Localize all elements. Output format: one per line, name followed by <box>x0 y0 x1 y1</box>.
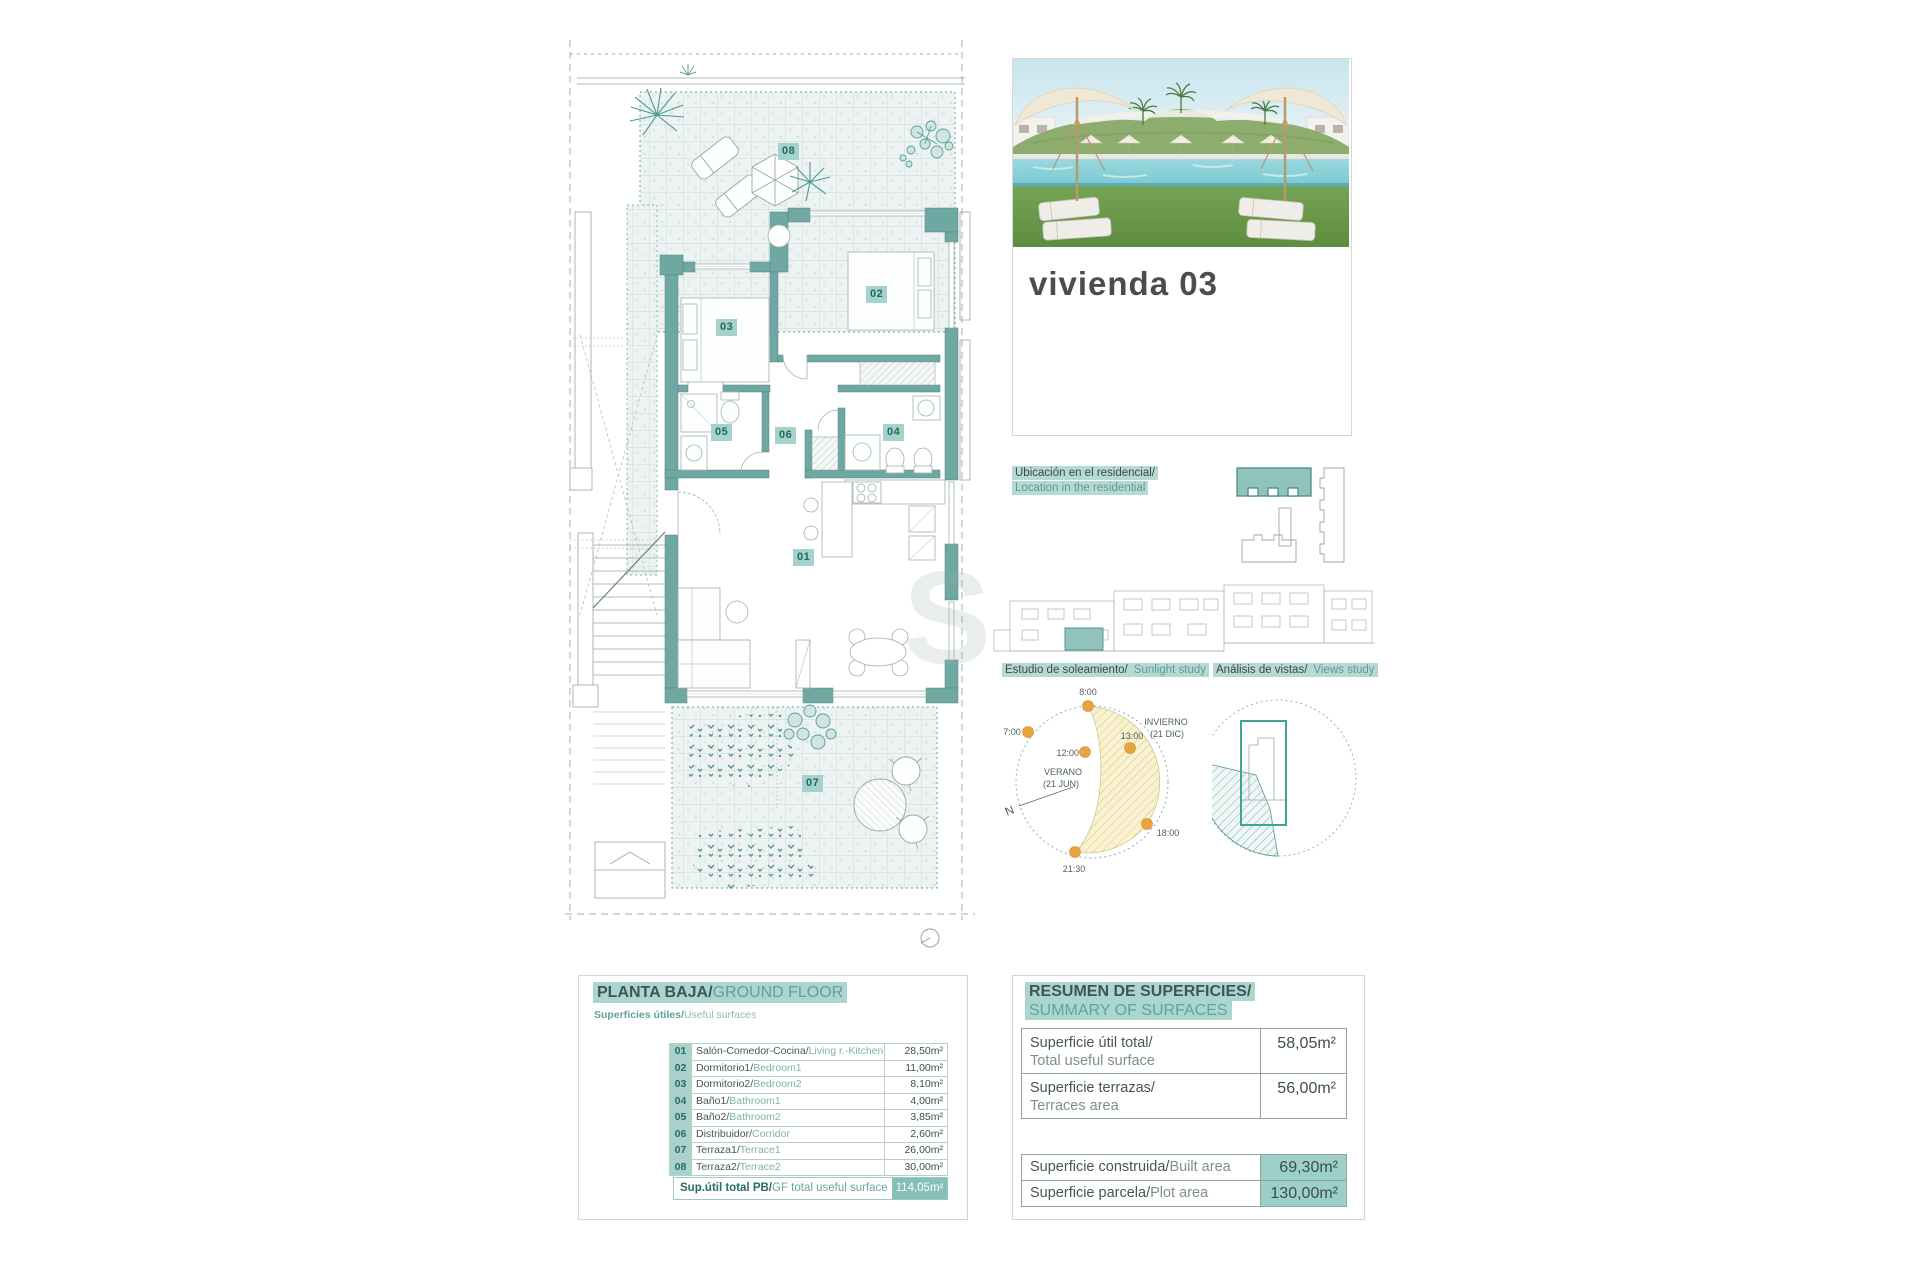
terrace-table-icon <box>854 779 906 831</box>
location-label-es: Ubicación en el residencial/ <box>1012 466 1158 480</box>
table-row: Superficie construida/Built area 69,30m² <box>1022 1155 1346 1181</box>
room-label-05: 05 <box>711 424 732 441</box>
views-caption: Análisis de vistas/Views study <box>1213 663 1378 678</box>
tv-unit-icon <box>796 640 810 688</box>
sunlight-label-es: Estudio de soleamiento/ <box>1002 663 1131 677</box>
ground-floor-title-es: PLANTA BAJA/ <box>597 984 713 1001</box>
summer-date: (21 JUN) <box>1043 779 1079 789</box>
room-label-03: 03 <box>716 319 737 336</box>
table-row: Superficie útil total/Total useful surfa… <box>1022 1029 1346 1074</box>
views-wedge <box>1212 762 1278 856</box>
table-row: 01Salón-Comedor-Cocina/Living r.-Kitchen… <box>670 1044 947 1061</box>
sun-time-13: 13:00 <box>1121 731 1144 741</box>
ground-floor-title-en: GROUND FLOOR <box>713 984 844 1001</box>
side-strip-area <box>627 205 657 575</box>
bed-icon-room03 <box>681 298 769 382</box>
room-label-04: 04 <box>883 424 904 441</box>
site-location-diagram <box>1234 464 1351 568</box>
sun-time-18: 18:00 <box>1157 828 1180 838</box>
winter-date: (21 DIC) <box>1150 729 1184 739</box>
boundary-plant-icon <box>680 64 696 75</box>
summer-label: VERANO <box>1044 767 1082 777</box>
sunlight-label-en: Sunlight study <box>1131 663 1209 677</box>
table-row: 03Dormitorio2/Bedroom28,10m² <box>670 1077 947 1094</box>
total-value: 114,05m² <box>892 1178 947 1199</box>
summary-title-en: SUMMARY OF SURFACES <box>1025 1001 1232 1020</box>
table-row: Superficie parcela/Plot area 130,00m² <box>1022 1181 1346 1206</box>
sofa-icon <box>678 588 750 688</box>
sunlight-study-diagram: 8:00 7:00 13:00 12:00 18:00 21:30 VERANO… <box>995 678 1195 890</box>
winter-label: INVIERNO <box>1144 717 1188 727</box>
table-row: 06Distribuidor/Corridor2,60m² <box>670 1127 947 1144</box>
table-row: Superficie terrazas/Terraces area 56,00m… <box>1022 1074 1346 1118</box>
ground-floor-subtitle: Superficies útiles/Useful surfaces <box>594 1009 756 1021</box>
room-label-02: 02 <box>866 286 887 303</box>
dwelling-title: vivienda 03 <box>1029 265 1218 303</box>
views-label-es: Análisis de vistas/ <box>1213 663 1310 677</box>
summary-panel: RESUMEN DE SUPERFICIES/ SUMMARY OF SURFA… <box>1012 975 1365 1220</box>
sun-time-8: 8:00 <box>1079 687 1097 697</box>
room-label-01: 01 <box>793 549 814 566</box>
sun-arc-band <box>1075 706 1160 853</box>
north-label: N <box>1003 803 1016 819</box>
table-row: 08Terraza2/Terrace230,00m² <box>670 1160 947 1177</box>
table-row: 07Terraza1/Terrace126,00m² <box>670 1143 947 1160</box>
dining-table-icon <box>849 629 908 676</box>
bed-icon-room02 <box>848 252 934 330</box>
summary-title-es: RESUMEN DE SUPERFICIES/ <box>1025 982 1255 1001</box>
room-surfaces-table: 01Salón-Comedor-Cocina/Living r.-Kitchen… <box>669 1043 948 1176</box>
elevation-drawing <box>992 580 1377 658</box>
table-row: 05Baño2/Bathroom23,85m² <box>670 1110 947 1127</box>
summary-table-built-plot: Superficie construida/Built area 69,30m²… <box>1021 1154 1347 1207</box>
total-useful-surface-row: Sup.útil total PB/GF total useful surfac… <box>673 1177 948 1200</box>
survey-mark-icon <box>921 929 939 947</box>
location-label-en: Location in the residential <box>1012 481 1148 495</box>
room-label-07: 07 <box>802 775 823 792</box>
floor-plan-svg <box>565 40 975 950</box>
room-label-06: 06 <box>775 427 796 444</box>
floor-plan: 01 02 03 04 05 06 07 08 <box>565 40 975 950</box>
upper-site-lines <box>577 78 965 84</box>
summary-table-main: Superficie útil total/Total useful surfa… <box>1021 1028 1347 1119</box>
photo-card: vivienda 03 <box>1012 58 1352 436</box>
watermark-letter: S <box>903 552 991 684</box>
sunlight-caption: Estudio de soleamiento/Sunlight study <box>1002 663 1209 678</box>
room-label-08: 08 <box>778 143 799 160</box>
table-row: 02Dormitorio1/Bedroom111,00m² <box>670 1061 947 1078</box>
table-row: 04Baño1/Bathroom14,00m² <box>670 1094 947 1111</box>
north-line <box>1019 787 1073 806</box>
views-study-diagram <box>1212 688 1390 890</box>
ground-floor-panel: PLANTA BAJA/GROUND FLOOR Superficies úti… <box>578 975 968 1220</box>
summary-title: RESUMEN DE SUPERFICIES/ SUMMARY OF SURFA… <box>1025 982 1255 1020</box>
ground-floor-title: PLANTA BAJA/GROUND FLOOR <box>593 984 847 1002</box>
views-label-en: Views study <box>1310 663 1377 677</box>
location-caption: Ubicación en el residencial/ Location in… <box>1012 466 1252 496</box>
sun-time-2130: 21:30 <box>1063 864 1086 874</box>
pool-photo <box>1013 59 1349 247</box>
sun-time-7: 7:00 <box>1003 727 1021 737</box>
brochure-page: { "photo_card": { "title": "vivienda 03"… <box>0 0 1920 1280</box>
boiler-icon <box>768 225 790 247</box>
sun-time-12: 12:00 <box>1056 748 1079 758</box>
